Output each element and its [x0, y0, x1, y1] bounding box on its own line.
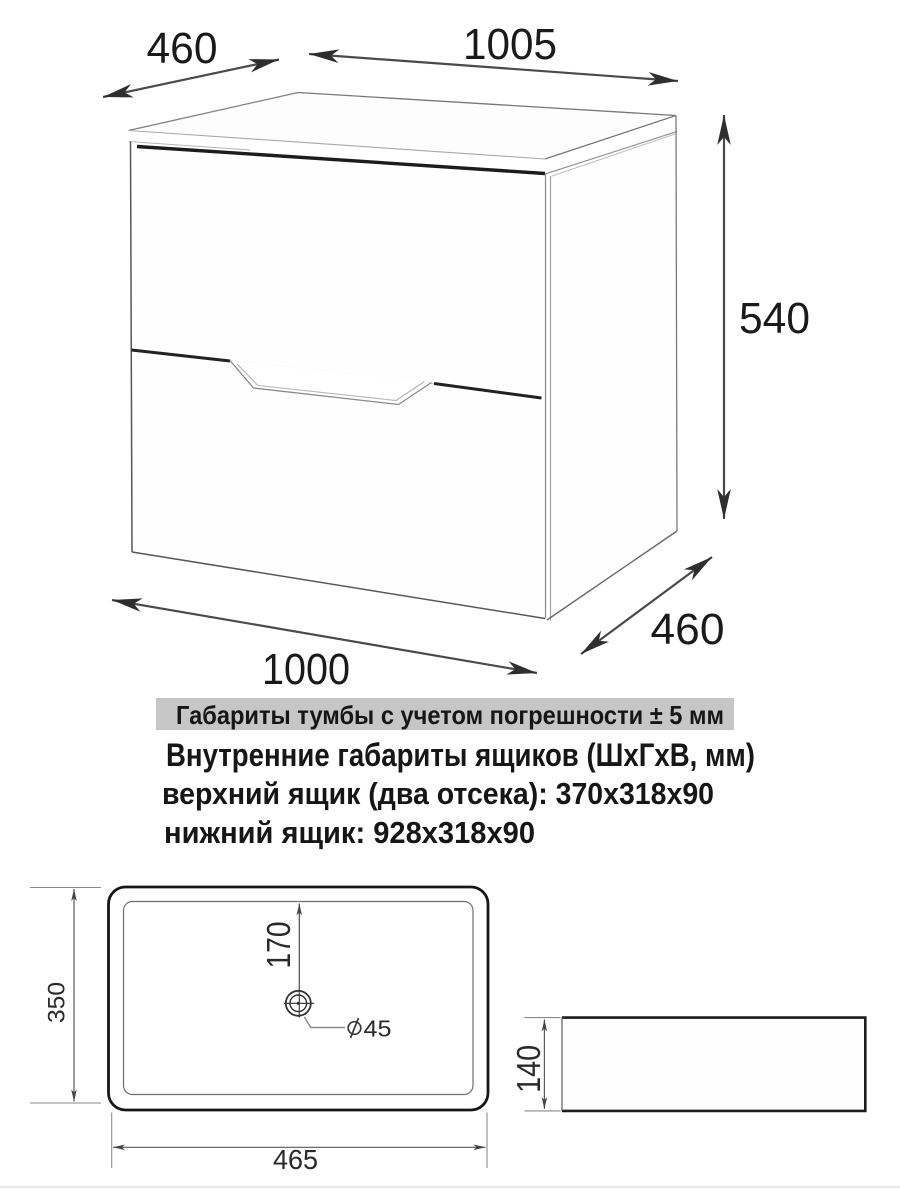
svg-text:170: 170 [260, 922, 297, 969]
svg-text:465: 465 [273, 1144, 318, 1175]
svg-text:140: 140 [510, 1045, 547, 1093]
svg-text:Габариты тумбы с учетом погреш: Габариты тумбы с учетом погрешности ± 5 … [176, 700, 724, 730]
svg-text:1000: 1000 [262, 645, 350, 694]
svg-text:Внутренние габариты ящиков (Шх: Внутренние габариты ящиков (ШхГхВ, мм) [166, 737, 755, 773]
svg-text:350: 350 [44, 982, 71, 1023]
svg-text:нижний ящик: 928х318х90: нижний ящик: 928х318х90 [164, 815, 535, 850]
svg-text:540: 540 [739, 294, 810, 343]
svg-text:460: 460 [651, 605, 725, 654]
svg-text:45: 45 [364, 1016, 392, 1042]
svg-text:460: 460 [147, 24, 218, 73]
svg-text:верхний ящик (два отсека): 370: верхний ящик (два отсека): 370х318х90 [162, 776, 714, 811]
svg-text:1005: 1005 [463, 20, 557, 69]
